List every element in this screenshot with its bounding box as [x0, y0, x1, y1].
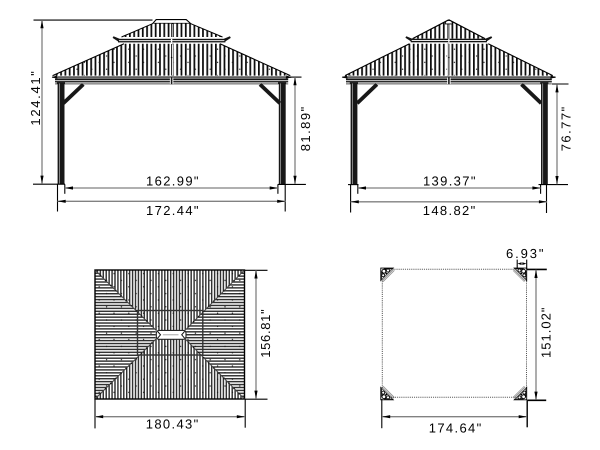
svg-text:76.77": 76.77" — [558, 106, 573, 151]
svg-text:148.82": 148.82" — [423, 203, 476, 218]
svg-text:81.89": 81.89" — [298, 106, 313, 151]
svg-text:174.64": 174.64" — [429, 420, 482, 435]
svg-text:172.44": 172.44" — [146, 203, 199, 218]
svg-text:139.37": 139.37" — [423, 174, 476, 189]
svg-text:180.43": 180.43" — [146, 417, 199, 432]
svg-text:6.93": 6.93" — [506, 246, 544, 261]
svg-text:162.99": 162.99" — [146, 174, 199, 189]
svg-text:151.02": 151.02" — [538, 307, 553, 358]
svg-text:124.41": 124.41" — [28, 71, 43, 126]
svg-text:156.81": 156.81" — [258, 309, 273, 358]
